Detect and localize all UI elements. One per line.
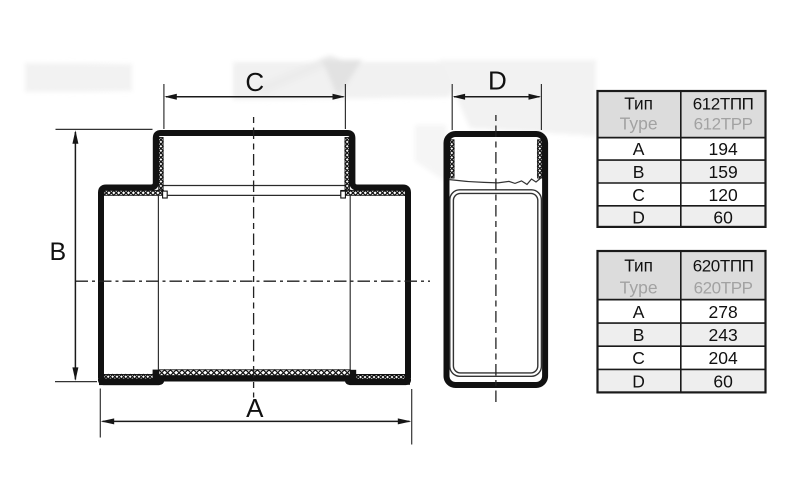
svg-text:Type: Type [620,113,658,133]
svg-text:B: B [633,162,645,182]
svg-text:60: 60 [713,207,733,227]
svg-text:278: 278 [708,302,737,322]
svg-text:612TPP: 612TPP [694,114,753,133]
svg-text:C: C [245,67,264,97]
svg-text:C: C [632,185,645,205]
svg-text:Тип: Тип [624,256,653,276]
svg-text:D: D [488,66,507,96]
svg-text:194: 194 [708,139,737,159]
svg-text:A: A [633,139,645,159]
svg-text:D: D [632,207,645,227]
svg-text:B: B [49,238,66,266]
svg-text:120: 120 [708,185,737,205]
svg-text:C: C [632,348,645,368]
svg-text:Type: Type [620,278,658,298]
svg-text:243: 243 [708,325,737,345]
svg-text:Тип: Тип [624,93,653,113]
svg-text:612ТПП: 612ТПП [693,94,754,113]
svg-text:620TPP: 620TPP [694,279,753,298]
svg-text:60: 60 [713,371,733,391]
svg-text:B: B [633,325,645,345]
svg-text:204: 204 [708,348,737,368]
svg-text:A: A [246,393,264,423]
svg-text:A: A [633,302,645,322]
svg-text:D: D [632,371,645,391]
svg-text:620ТПП: 620ТПП [693,257,754,276]
svg-text:159: 159 [708,162,737,182]
